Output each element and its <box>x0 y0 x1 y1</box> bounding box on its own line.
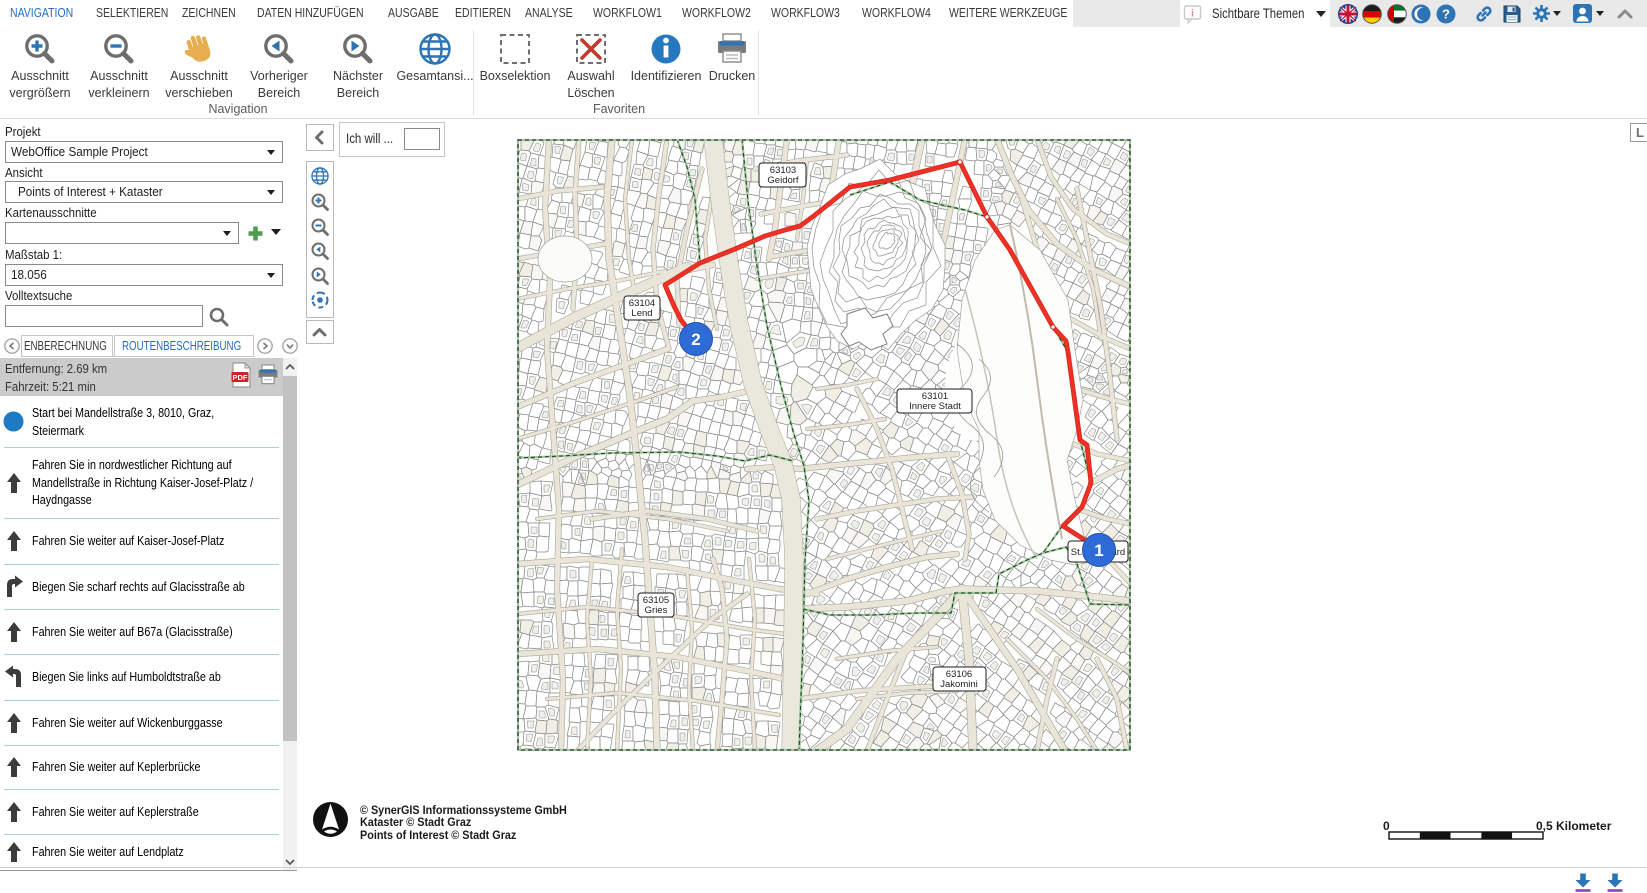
svg-text:i: i <box>1191 9 1194 20</box>
svg-text:1: 1 <box>1094 541 1103 560</box>
svg-text:Gries: Gries <box>645 605 668 616</box>
svg-text:Lend: Lend <box>631 308 652 319</box>
svg-text:Innere Stadt: Innere Stadt <box>909 401 961 412</box>
svg-text:PDF: PDF <box>233 373 248 382</box>
svg-text:2: 2 <box>691 330 700 349</box>
svg-text:?: ? <box>1442 7 1450 22</box>
svg-text:Geidorf: Geidorf <box>767 175 799 186</box>
svg-text:Jakomini: Jakomini <box>940 679 978 690</box>
